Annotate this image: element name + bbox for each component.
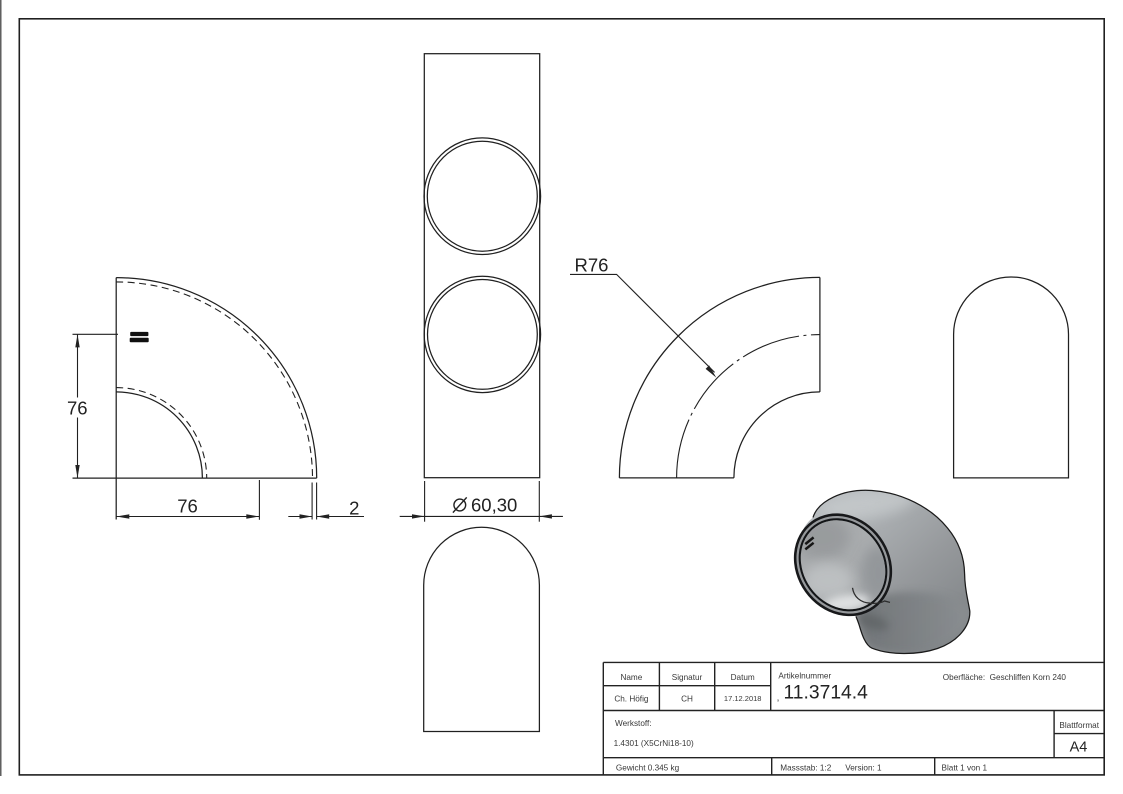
svg-text:Blatt 1 von 1: Blatt 1 von 1 <box>942 763 988 772</box>
svg-text:Oberfläche: Geschliffen Korn: Oberfläche: Geschliffen Korn 240 <box>943 673 1067 682</box>
svg-text:Version: 1: Version: 1 <box>845 763 882 772</box>
svg-text:1.4301 (X5CrNi18-10): 1.4301 (X5CrNi18-10) <box>614 739 694 748</box>
svg-text:A4: A4 <box>1070 740 1088 756</box>
svg-text:2: 2 <box>349 498 359 519</box>
svg-text:CH: CH <box>681 694 693 703</box>
svg-text:Massstab: 1:2: Massstab: 1:2 <box>780 763 831 772</box>
svg-text:Artikelnummer: Artikelnummer <box>778 671 831 680</box>
svg-text:R76: R76 <box>575 254 609 275</box>
svg-text:17.12.2018: 17.12.2018 <box>724 694 762 703</box>
svg-text:Gewicht 0.345 kg: Gewicht 0.345 kg <box>616 763 680 772</box>
svg-text:Signatur: Signatur <box>672 673 703 682</box>
svg-text:11.3714.4: 11.3714.4 <box>784 683 869 704</box>
svg-text:Blattformat: Blattformat <box>1059 721 1099 730</box>
svg-text:76: 76 <box>177 496 198 517</box>
svg-text:Werkstoff:: Werkstoff: <box>615 719 652 728</box>
svg-text:,: , <box>777 693 780 703</box>
svg-text:Ch. Höfig: Ch. Höfig <box>614 694 649 703</box>
svg-text:Datum: Datum <box>731 673 755 682</box>
svg-text:76: 76 <box>67 397 88 418</box>
svg-text:60,30: 60,30 <box>471 495 517 516</box>
svg-text:Name: Name <box>620 673 642 682</box>
